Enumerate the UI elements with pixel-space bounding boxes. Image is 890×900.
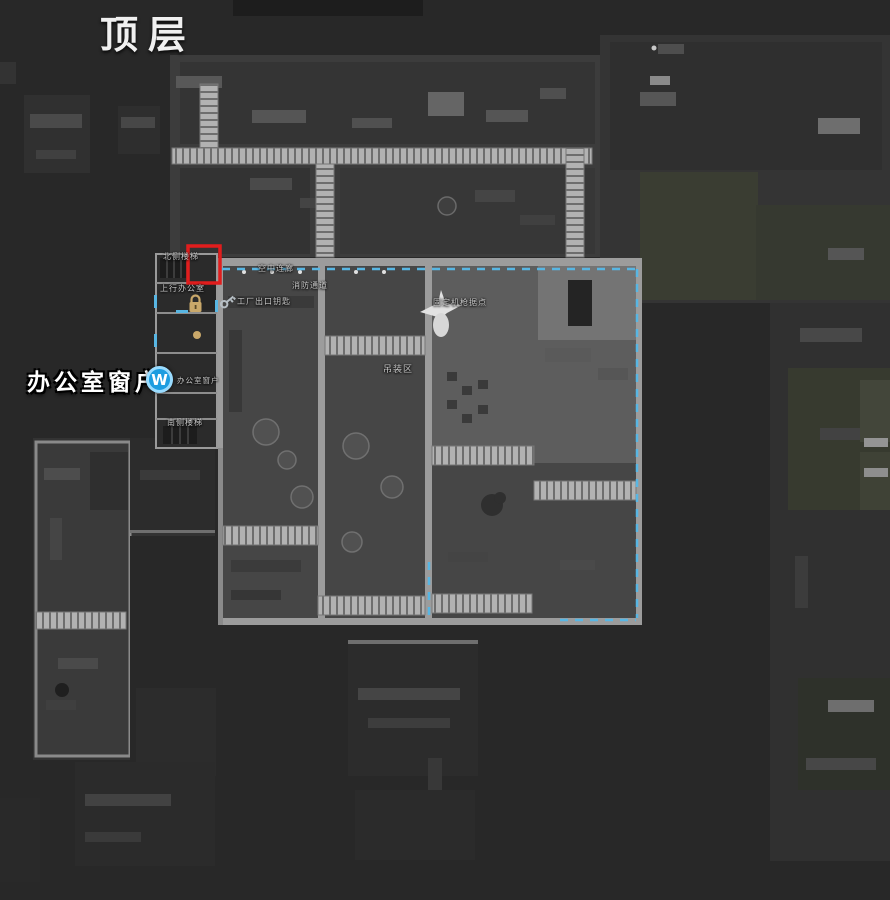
game-map-screen: 顶层 办公室窗户 W 北侧楼梯 上行办公室 空中连廊 消防通道 工厂出口钥匙 固… bbox=[0, 0, 890, 900]
south-stairs-shape bbox=[163, 426, 197, 444]
factory-top-floor-map bbox=[0, 0, 890, 900]
north-stairs-shape bbox=[160, 258, 186, 278]
office-window-marker[interactable]: W bbox=[146, 366, 173, 393]
small-lock-icon bbox=[193, 331, 201, 339]
